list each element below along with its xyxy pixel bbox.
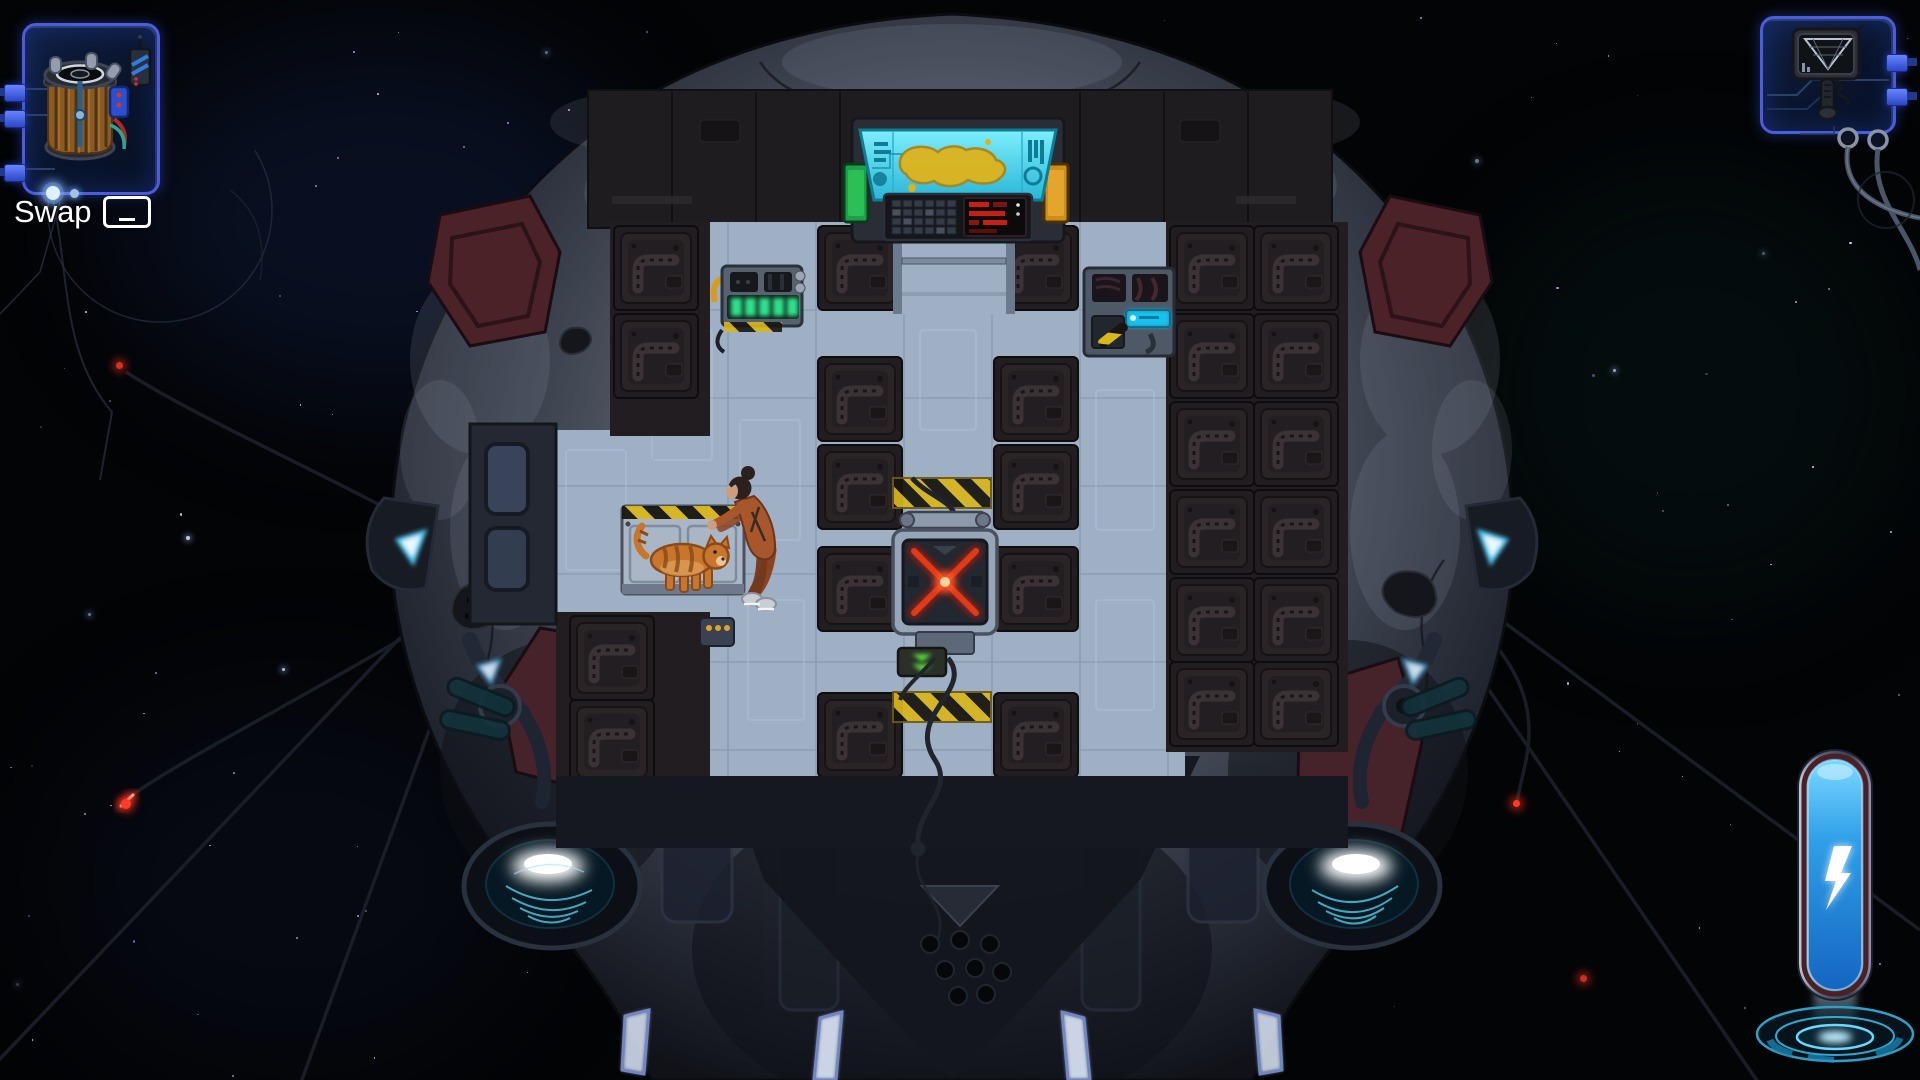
corridor (893, 242, 1015, 314)
battery-cells (731, 298, 798, 316)
console-control-panel (884, 194, 1032, 240)
slot-connector-tab (4, 110, 26, 128)
energy-gauge (1748, 738, 1920, 1080)
console-side-screen-green (844, 164, 868, 222)
red-signal-light (1513, 800, 1520, 807)
slot-connector-tab (1886, 88, 1908, 106)
slot-connector-tab (1886, 54, 1908, 72)
red-signal-light (1580, 975, 1587, 982)
slot-connector-tab (4, 84, 26, 102)
ship-scene (0, 0, 1920, 1080)
console-screen (860, 130, 1056, 200)
red-signal-light (116, 362, 123, 369)
map-console[interactable] (844, 118, 1068, 242)
generator-icon (28, 35, 154, 183)
red-signal-light (121, 799, 131, 809)
console-red-display (964, 198, 1026, 236)
holo-base (1757, 1007, 1913, 1061)
swap-label: Swap (14, 194, 92, 230)
item-slot-scanner[interactable] (1760, 16, 1896, 134)
wire-terminal[interactable] (1084, 268, 1174, 356)
item-slot-generator[interactable] (22, 23, 160, 195)
swap-hint: Swap (14, 194, 151, 230)
slot-connector-tab (4, 164, 26, 182)
spacebar-key-icon (103, 196, 151, 228)
alcove-wall (470, 424, 556, 624)
game-viewport: Swap (0, 0, 1920, 1080)
scanner-icon (1767, 25, 1889, 125)
